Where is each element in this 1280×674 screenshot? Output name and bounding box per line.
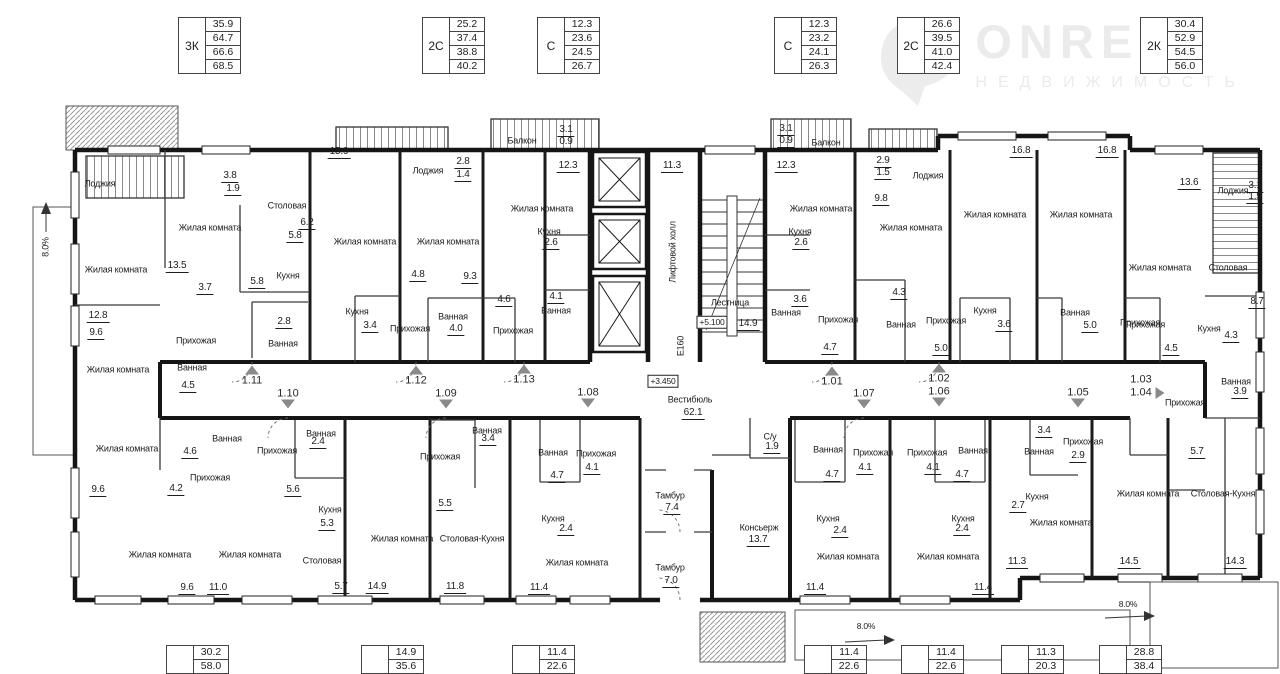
unit-type: С xyxy=(538,18,565,73)
area-value: 11.4 xyxy=(804,583,826,595)
room-label: Ванная xyxy=(268,340,298,349)
area-value: 2.8 xyxy=(454,157,471,169)
area-value: 0.9 xyxy=(777,136,794,148)
apartment-direction-icon xyxy=(932,398,946,407)
area-value: 1.5 xyxy=(1246,192,1263,204)
floorplan-page: { "logo": {"name": "ONRELT", "subtitle":… xyxy=(0,0,1280,670)
unit-area-value: 20.3 xyxy=(1029,660,1063,673)
area-value: 3.4 xyxy=(361,321,378,333)
unit-type-table: 2С26.639.541.042.4 xyxy=(897,17,960,74)
area-value: 16.8 xyxy=(1096,146,1119,158)
area-value: 14.3 xyxy=(1224,557,1247,569)
unit-area-value: 11.4 xyxy=(832,646,866,660)
room-label: Кухня xyxy=(816,515,839,524)
room-label: Жилая комната xyxy=(219,551,281,560)
area-value: 5.8 xyxy=(248,277,265,289)
unit-area-value: 11.3 xyxy=(1029,646,1063,660)
unit-area-value: 22.6 xyxy=(929,660,963,673)
area-value: 3.6 xyxy=(791,295,808,307)
ramp-slope-label: 8.0% xyxy=(857,622,876,631)
unit-area-value: 37.4 xyxy=(450,32,484,46)
area-value: 1.9 xyxy=(224,184,241,196)
room-label: Ванная xyxy=(1024,448,1054,457)
room-label: Прихожая xyxy=(176,337,216,346)
unit-area-value: 11.4 xyxy=(929,646,963,660)
level-mark: +3.450 xyxy=(647,375,678,388)
room-label: Ванная xyxy=(813,446,843,455)
room-label: Лестница xyxy=(711,299,749,308)
area-value: 12.3 xyxy=(557,161,580,173)
room-label: Жилая комната xyxy=(817,553,879,562)
area-value: 4.0 xyxy=(447,324,464,336)
room-label: Консьерж xyxy=(740,524,779,533)
unit-area-value: 22.6 xyxy=(832,660,866,673)
area-value: 7.4 xyxy=(663,503,680,515)
room-label: Жилая комната xyxy=(85,266,147,275)
room-label: Жилая комната xyxy=(1117,490,1179,499)
rotated-label: 8.0% xyxy=(42,237,51,257)
area-value: 9.3 xyxy=(461,272,478,284)
room-label: Ванная xyxy=(541,307,571,316)
unit-area-value: 22.6 xyxy=(540,660,574,673)
room-label: Жилая комната xyxy=(1050,211,1112,220)
apartment-number: 1.03 xyxy=(1130,375,1151,386)
unit-type xyxy=(902,646,929,673)
unit-area-value: 30.2 xyxy=(194,646,228,660)
area-value: 9.8 xyxy=(872,194,889,206)
unit-area-value: 35.9 xyxy=(206,18,240,32)
apartment-number: 1.09 xyxy=(435,389,456,400)
area-value: 11.3 xyxy=(661,161,683,173)
area-value: 13.6 xyxy=(1178,178,1201,190)
area-value: 4.6 xyxy=(181,447,198,459)
room-label: Прихожая xyxy=(907,449,947,458)
area-value: 3.7 xyxy=(196,283,213,295)
area-value: 2.6 xyxy=(542,238,559,250)
room-label: Кухня xyxy=(788,228,811,237)
apartment-number: 1.11 xyxy=(242,376,263,387)
area-value: 0.9 xyxy=(557,137,574,149)
unit-type-table: С12.323.224.126.3 xyxy=(774,17,837,74)
apartment-number: 1.12 xyxy=(405,376,426,387)
apartment-number: 1.13 xyxy=(513,375,534,386)
room-label: Ванная xyxy=(1060,309,1090,318)
room-label: Столовая xyxy=(268,202,307,211)
area-value: 6.2 xyxy=(298,218,315,230)
unit-type: 2С xyxy=(898,18,925,73)
apartment-direction-icon xyxy=(281,400,295,409)
area-value: 11.3 xyxy=(1006,557,1028,569)
area-value: 5.7 xyxy=(1188,447,1205,459)
unit-area-value: 24.5 xyxy=(565,46,599,60)
area-value: 3.9 xyxy=(1231,387,1248,399)
room-label: Кухня xyxy=(345,308,368,317)
room-label: Жилая комната xyxy=(334,238,396,247)
unit-area-value: 12.3 xyxy=(565,18,599,32)
unit-type xyxy=(362,646,389,673)
room-label: Жилая комната xyxy=(964,211,1026,220)
unit-area-value: 42.4 xyxy=(925,60,959,73)
apartment-number: 1.07 xyxy=(853,389,874,400)
area-value: 15.9 xyxy=(328,147,351,159)
area-value: 5.3 xyxy=(318,519,335,531)
room-label: Жилая комната xyxy=(790,205,852,214)
room-label: Ванная xyxy=(212,435,242,444)
area-value: 5.7 xyxy=(332,582,349,594)
area-value: 4.2 xyxy=(167,484,184,496)
room-label: Прихожая xyxy=(576,450,616,459)
unit-area-value: 23.6 xyxy=(565,32,599,46)
unit-type-table: 2К30.452.954.556.0 xyxy=(1140,17,1203,74)
unit-type xyxy=(1100,646,1127,673)
room-label: Кухня xyxy=(318,506,341,515)
room-label: Жилая комната xyxy=(87,366,149,375)
rotated-label: E160 xyxy=(677,336,686,356)
unit-area-value: 23.2 xyxy=(802,32,836,46)
area-value: 11.4 xyxy=(528,583,550,595)
unit-area-value: 64.7 xyxy=(206,32,240,46)
apartment-direction-icon xyxy=(439,400,453,409)
unit-type-table: 3К35.964.766.668.5 xyxy=(178,17,241,74)
area-value: 4.3 xyxy=(1222,331,1239,343)
apartment-number: 1.05 xyxy=(1067,388,1088,399)
room-label: Прихожая xyxy=(1063,438,1103,447)
apartment-number: 1.06 xyxy=(928,387,949,398)
apartment-number: 1.04 xyxy=(1130,388,1151,399)
area-value: 5.8 xyxy=(286,231,303,243)
unit-type-table: 2С25.237.438.840.2 xyxy=(422,17,485,74)
room-label: Прихожая xyxy=(818,316,858,325)
area-value: 2.4 xyxy=(953,524,970,536)
area-value: 9.6 xyxy=(178,583,195,595)
rotated-label: Лифтовой холл xyxy=(669,221,678,283)
area-value: 5.0 xyxy=(932,344,949,356)
room-label: Ванная xyxy=(177,364,207,373)
unit-area-value: 52.9 xyxy=(1168,32,1202,46)
area-value: 3.8 xyxy=(221,171,238,183)
room-label: Жилая комната xyxy=(511,205,573,214)
apartment-direction-icon xyxy=(857,400,871,409)
area-value: 4.6 xyxy=(495,295,512,307)
area-value: 5.6 xyxy=(284,485,301,497)
room-label: Жилая комната xyxy=(546,559,608,568)
area-value: 11.0 xyxy=(207,583,229,595)
room-label: Лоджия xyxy=(85,180,116,189)
room-label: Жилая комната xyxy=(917,553,979,562)
area-value: 1.4 xyxy=(454,170,471,182)
area-value: 16.8 xyxy=(1010,146,1033,158)
apartment-direction-icon xyxy=(1156,387,1165,399)
unit-area-value: 38.4 xyxy=(1127,660,1161,673)
area-value: 13.7 xyxy=(747,535,770,547)
area-value: 2.4 xyxy=(831,526,848,538)
room-label: Столовая-Кухня xyxy=(1191,490,1256,499)
unit-area-value: 38.8 xyxy=(450,46,484,60)
room-label: Ванная xyxy=(958,447,988,456)
area-value: 4.3 xyxy=(890,288,907,300)
room-label: Жилая комната xyxy=(417,238,479,247)
area-value: 4.1 xyxy=(547,292,564,304)
room-label: Прихожая xyxy=(390,325,430,334)
apartment-direction-icon xyxy=(581,399,595,408)
room-label: Столовая xyxy=(1209,264,1248,273)
room-label: Прихожая xyxy=(853,449,893,458)
apartment-direction-icon xyxy=(517,365,531,374)
room-label: Вестибюль xyxy=(668,396,713,405)
unit-area-value: 14.9 xyxy=(389,646,423,660)
room-label: Прихожая xyxy=(190,474,230,483)
unit-area-value: 24.1 xyxy=(802,46,836,60)
area-value: 4.1 xyxy=(583,463,600,475)
room-label: Балкон xyxy=(508,137,537,146)
room-label: Жилая комната xyxy=(880,224,942,233)
unit-type-table: С12.323.624.526.7 xyxy=(537,17,600,74)
apartment-number: 1.02 xyxy=(928,374,949,385)
unit-area-value: 25.2 xyxy=(450,18,484,32)
apartment-direction-icon xyxy=(1071,399,1085,408)
unit-area-value: 41.0 xyxy=(925,46,959,60)
unit-area-value: 54.5 xyxy=(1168,46,1202,60)
unit-area-value: 12.3 xyxy=(802,18,836,32)
area-value: 4.5 xyxy=(1162,344,1179,356)
area-value: 2.4 xyxy=(309,437,326,449)
ramp-slope-label: 8.0% xyxy=(1119,600,1138,609)
unit-area-value: 30.4 xyxy=(1168,18,1202,32)
room-label: Жилая комната xyxy=(179,224,241,233)
area-value: 12.3 xyxy=(775,161,798,173)
area-value: 4.7 xyxy=(953,470,970,482)
room-label: Лоджия xyxy=(413,167,444,176)
area-value: 9.6 xyxy=(89,485,106,497)
apartment-direction-icon xyxy=(825,367,839,376)
room-label: Лоджия xyxy=(1218,187,1249,196)
room-label: Тамбур xyxy=(655,564,684,573)
level-mark: +5.100 xyxy=(696,316,727,329)
room-label: Столовая-Кухня xyxy=(440,535,505,544)
apartment-direction-icon xyxy=(245,366,259,375)
area-value: 7.0 xyxy=(662,576,679,588)
room-label: Прихожая xyxy=(420,453,460,462)
area-value: 11.4 xyxy=(972,583,994,595)
unit-type: 3К xyxy=(179,18,206,73)
apartment-number: 1.01 xyxy=(821,377,842,388)
apartment-direction-icon xyxy=(409,366,423,375)
room-label: Кухня xyxy=(1025,493,1048,502)
area-value: 14.9 xyxy=(366,582,389,594)
unit-area-value: 58.0 xyxy=(194,660,228,673)
area-value: 2.8 xyxy=(275,317,292,329)
room-label: Кухня xyxy=(276,272,299,281)
room-label: Жилая комната xyxy=(96,445,158,454)
room-label: Ванная xyxy=(886,321,916,330)
room-label: Кухня xyxy=(1197,325,1220,334)
room-label: Прихожая xyxy=(493,327,533,336)
area-value: 13.5 xyxy=(166,261,189,273)
apartment-direction-icon xyxy=(932,364,946,373)
room-label: Жилая комната xyxy=(1030,519,1092,528)
room-label: Лоджия xyxy=(913,172,944,181)
room-label: Тамбур xyxy=(655,492,684,501)
unit-area-value: 39.5 xyxy=(925,32,959,46)
area-value: 9.6 xyxy=(87,328,104,340)
area-value: 8.7 xyxy=(1248,297,1265,309)
area-value: 14.9 xyxy=(737,319,760,331)
room-label: Жилая комната xyxy=(129,551,191,560)
area-value: 2.9 xyxy=(1069,451,1086,463)
area-value: 5.5 xyxy=(436,499,453,511)
unit-type: 2С xyxy=(423,18,450,73)
unit-type xyxy=(1002,646,1029,673)
area-value: 2.6 xyxy=(792,238,809,250)
area-value: 3.4 xyxy=(479,434,496,446)
unit-type: С xyxy=(775,18,802,73)
area-value: 5.0 xyxy=(1081,321,1098,333)
unit-area-value: 28.8 xyxy=(1127,646,1161,660)
area-value: 4.7 xyxy=(548,471,565,483)
unit-type xyxy=(805,646,832,673)
area-value: 4.5 xyxy=(179,381,196,393)
room-label: Кухня xyxy=(973,307,996,316)
area-value: 3.6 xyxy=(995,320,1012,332)
room-label: Прихожая xyxy=(257,447,297,456)
area-value: 4.1 xyxy=(856,463,873,475)
unit-area-value: 11.4 xyxy=(540,646,574,660)
area-value: 4.1 xyxy=(924,463,941,475)
apartment-number: 1.10 xyxy=(277,389,298,400)
area-value: 2.4 xyxy=(557,524,574,536)
unit-area-value: 26.3 xyxy=(802,60,836,73)
room-label: Жилая комната xyxy=(1129,264,1191,273)
area-value: 2.7 xyxy=(1009,501,1026,513)
room-label: Столовая xyxy=(303,557,342,566)
room-label: Ванная xyxy=(771,309,801,318)
room-label: Ванная xyxy=(438,313,468,322)
area-value: 1.9 xyxy=(763,442,780,454)
unit-area-value: 26.6 xyxy=(925,18,959,32)
area-value: 62.1 xyxy=(682,408,705,420)
unit-area-value: 66.6 xyxy=(206,46,240,60)
room-label: Балкон xyxy=(812,139,841,148)
unit-type xyxy=(513,646,540,673)
unit-area-value: 56.0 xyxy=(1168,60,1202,73)
unit-area-value: 40.2 xyxy=(450,60,484,73)
area-value: 14.5 xyxy=(1118,557,1141,569)
area-value: 4.7 xyxy=(821,343,838,355)
area-value: 4.8 xyxy=(409,270,426,282)
room-label: Прихожая xyxy=(926,317,966,326)
area-value: 11.8 xyxy=(444,582,466,594)
apartment-number: 1.08 xyxy=(577,388,598,399)
unit-area-value: 68.5 xyxy=(206,60,240,73)
room-label: Жилая комната xyxy=(371,535,433,544)
unit-type xyxy=(167,646,194,673)
plan-labels-layer: ЛоджияЖилая комнатаСтоловаяЖилая комната… xyxy=(0,0,1280,670)
unit-area-value: 35.6 xyxy=(389,660,423,673)
room-label: Прихожая xyxy=(1165,399,1205,408)
unit-type: 2К xyxy=(1141,18,1168,73)
room-label: Кухня xyxy=(537,228,560,237)
room-label: Прихожая xyxy=(1125,321,1165,330)
unit-area-value: 26.7 xyxy=(565,60,599,73)
area-value: 1.5 xyxy=(874,168,891,180)
area-value: 3.4 xyxy=(1035,426,1052,438)
area-value: 4.7 xyxy=(823,470,840,482)
room-label: Ванная xyxy=(538,449,568,458)
area-value: 12.8 xyxy=(87,311,110,323)
